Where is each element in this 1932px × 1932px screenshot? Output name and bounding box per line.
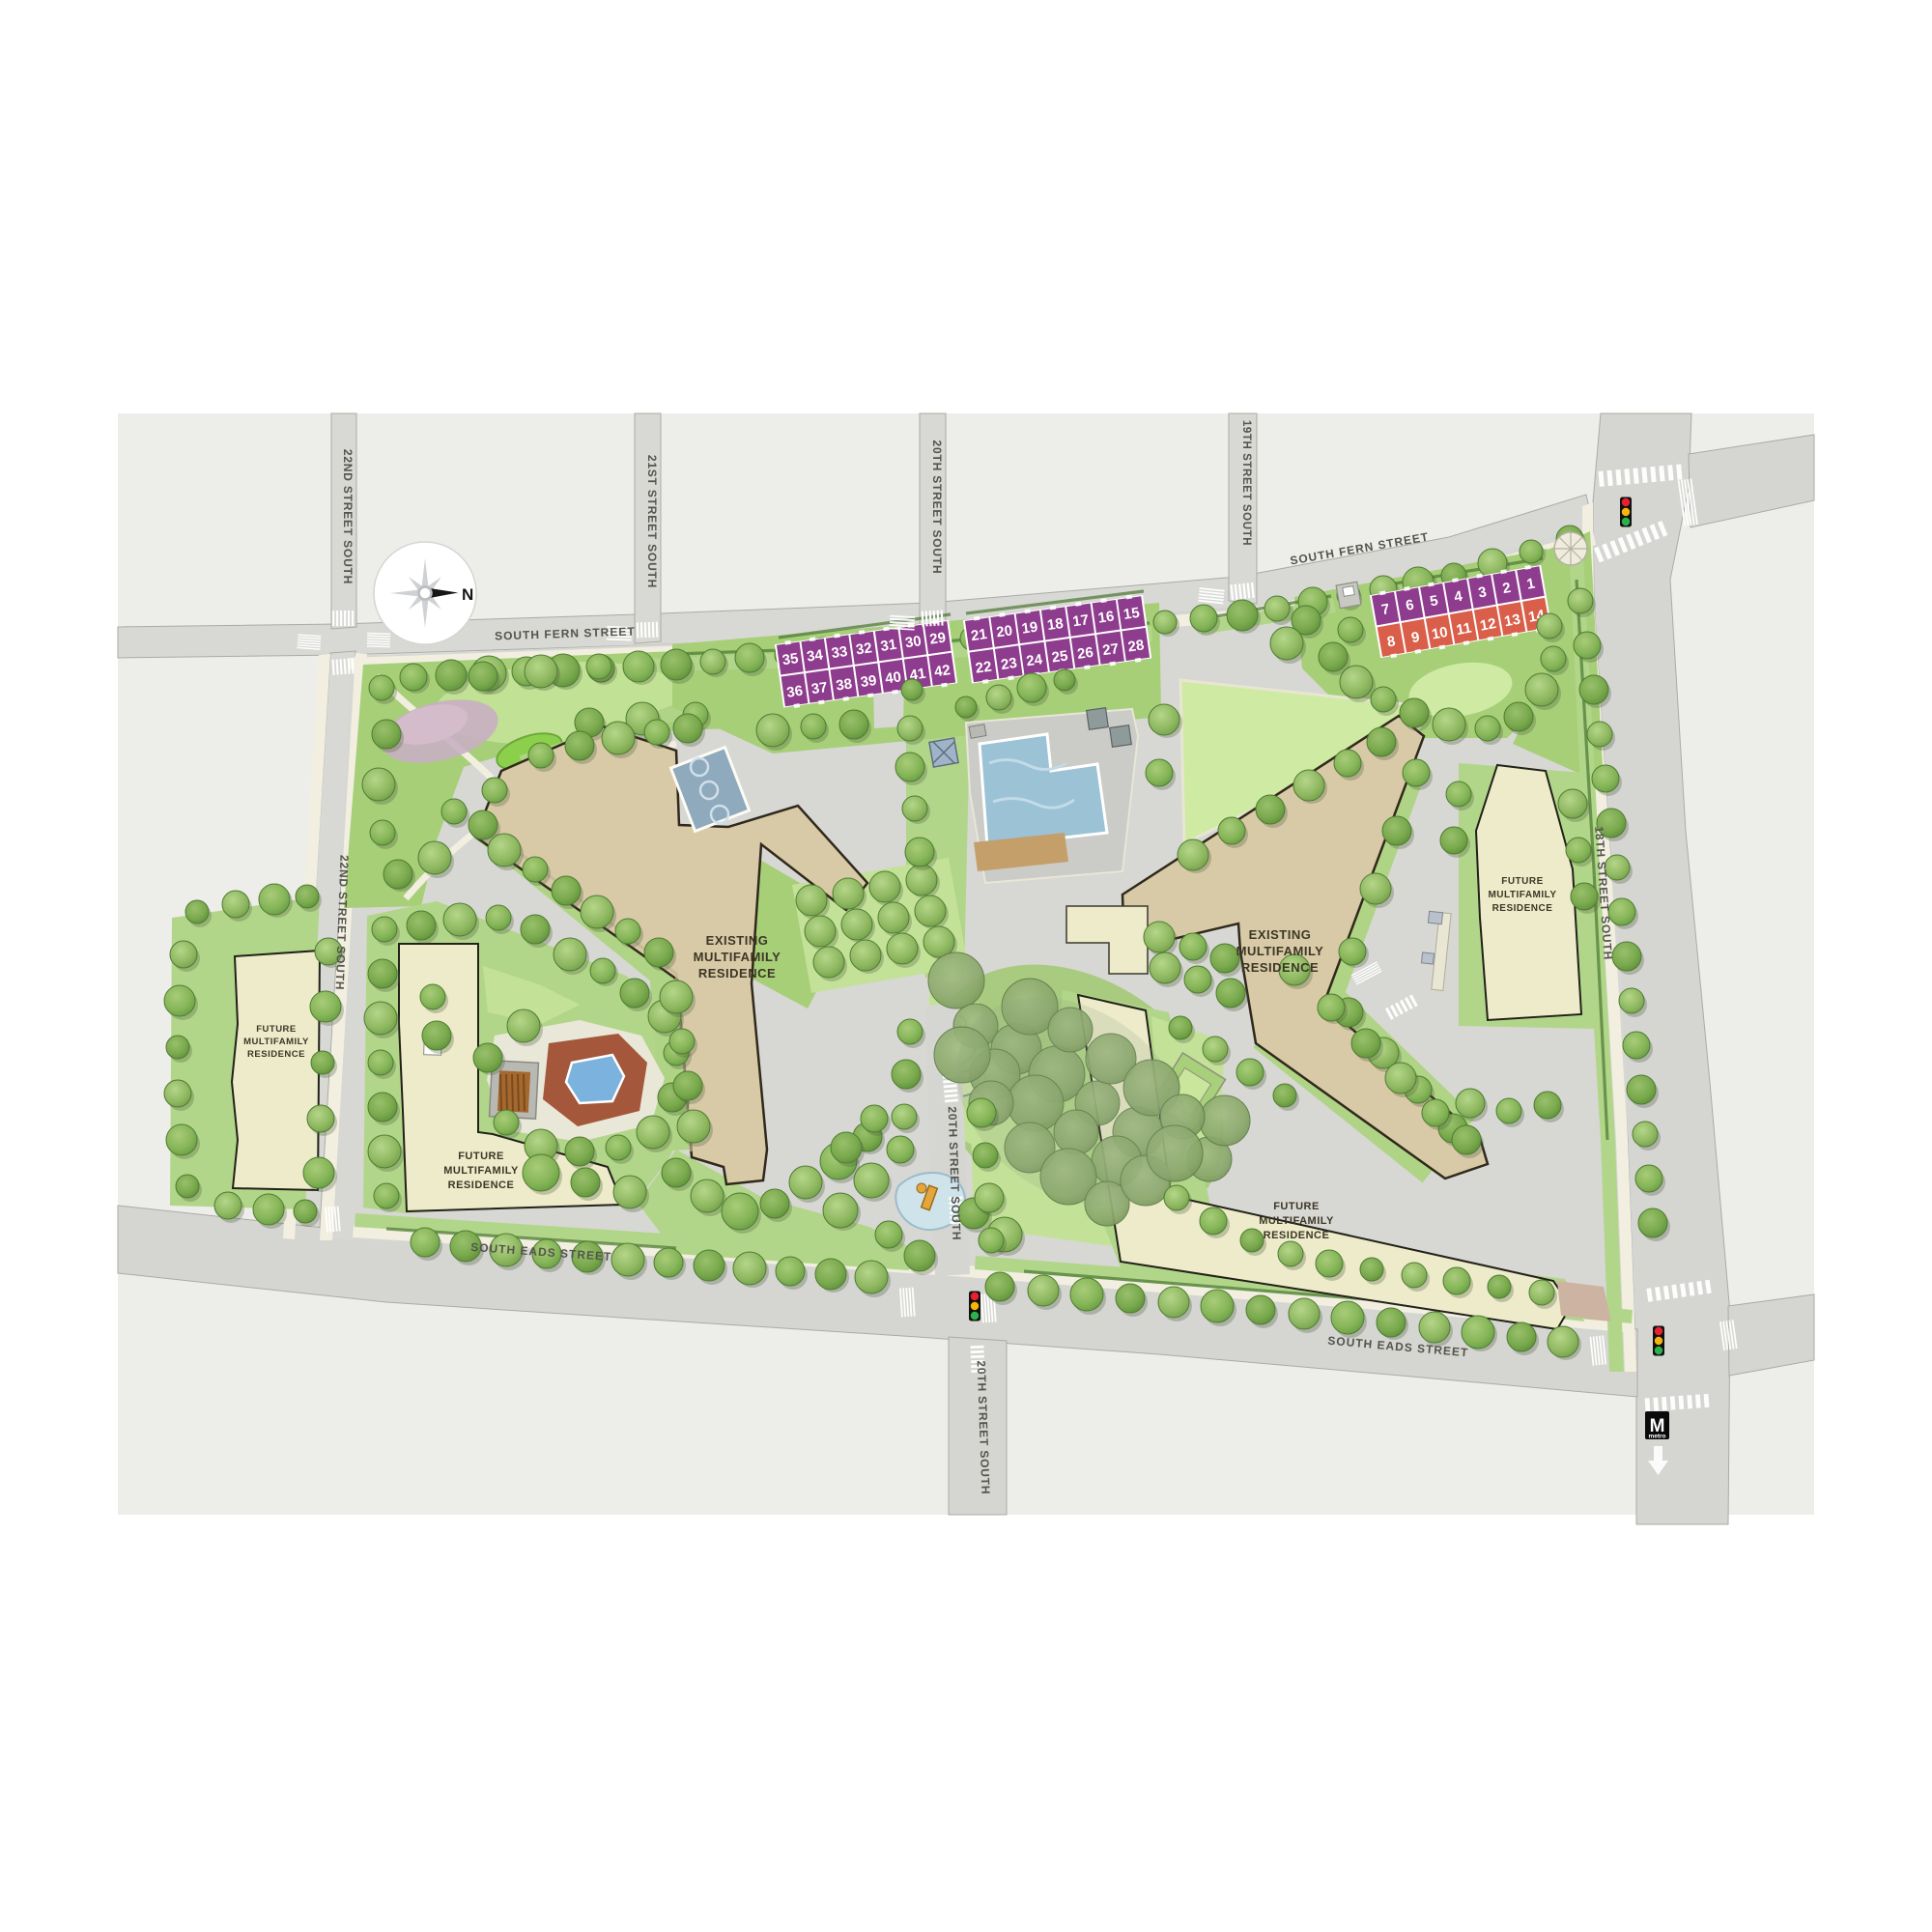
svg-text:18: 18 bbox=[1046, 615, 1065, 634]
svg-text:RESIDENCE: RESIDENCE bbox=[1264, 1230, 1330, 1241]
svg-text:37: 37 bbox=[810, 679, 829, 697]
svg-text:FUTURE: FUTURE bbox=[1273, 1201, 1320, 1212]
svg-text:metro: metro bbox=[1648, 1434, 1665, 1440]
svg-text:38: 38 bbox=[835, 675, 853, 694]
svg-text:22ND STREET SOUTH: 22ND STREET SOUTH bbox=[341, 449, 355, 584]
svg-text:MULTIFAMILY: MULTIFAMILY bbox=[1236, 944, 1324, 958]
svg-text:22: 22 bbox=[975, 659, 993, 677]
svg-text:40: 40 bbox=[884, 668, 902, 687]
svg-text:32: 32 bbox=[855, 639, 873, 658]
svg-text:20: 20 bbox=[995, 622, 1013, 640]
svg-text:29: 29 bbox=[928, 630, 947, 648]
svg-text:36: 36 bbox=[785, 683, 804, 701]
svg-text:12: 12 bbox=[1479, 615, 1497, 635]
svg-text:15: 15 bbox=[1122, 605, 1141, 623]
svg-text:28: 28 bbox=[1127, 637, 1146, 655]
svg-text:RESIDENCE: RESIDENCE bbox=[1492, 903, 1553, 914]
svg-text:MULTIFAMILY: MULTIFAMILY bbox=[243, 1037, 309, 1047]
svg-text:21: 21 bbox=[970, 626, 988, 644]
svg-text:RESIDENCE: RESIDENCE bbox=[698, 966, 776, 980]
svg-text:17: 17 bbox=[1071, 611, 1090, 630]
svg-text:EXISTING: EXISTING bbox=[1249, 927, 1312, 942]
svg-text:34: 34 bbox=[806, 646, 825, 665]
svg-text:20TH STREET SOUTH: 20TH STREET SOUTH bbox=[930, 440, 944, 575]
svg-text:25: 25 bbox=[1051, 647, 1069, 666]
svg-text:MULTIFAMILY: MULTIFAMILY bbox=[694, 950, 781, 964]
svg-text:21ST STREET SOUTH: 21ST STREET SOUTH bbox=[645, 455, 659, 588]
svg-text:13: 13 bbox=[1503, 611, 1521, 631]
svg-text:RESIDENCE: RESIDENCE bbox=[247, 1049, 305, 1060]
svg-text:11: 11 bbox=[1455, 620, 1473, 639]
svg-text:35: 35 bbox=[781, 650, 800, 668]
svg-text:33: 33 bbox=[831, 643, 849, 662]
svg-text:24: 24 bbox=[1025, 651, 1044, 669]
svg-text:19TH STREET SOUTH: 19TH STREET SOUTH bbox=[1240, 420, 1252, 546]
svg-text:42: 42 bbox=[933, 662, 952, 680]
svg-text:19: 19 bbox=[1021, 619, 1039, 638]
svg-text:26: 26 bbox=[1076, 644, 1094, 663]
svg-text:27: 27 bbox=[1101, 640, 1120, 659]
svg-text:RESIDENCE: RESIDENCE bbox=[1241, 960, 1319, 975]
svg-text:31: 31 bbox=[879, 637, 897, 655]
svg-text:FUTURE: FUTURE bbox=[1501, 876, 1544, 887]
svg-text:10: 10 bbox=[1431, 624, 1449, 643]
svg-text:EXISTING: EXISTING bbox=[706, 933, 769, 948]
svg-text:30: 30 bbox=[904, 633, 923, 651]
svg-text:MULTIFAMILY: MULTIFAMILY bbox=[443, 1165, 519, 1177]
svg-text:39: 39 bbox=[860, 672, 878, 691]
svg-text:RESIDENCE: RESIDENCE bbox=[448, 1179, 515, 1191]
svg-text:FUTURE: FUTURE bbox=[458, 1151, 504, 1162]
svg-text:FUTURE: FUTURE bbox=[256, 1024, 297, 1035]
svg-text:MULTIFAMILY: MULTIFAMILY bbox=[1259, 1215, 1334, 1227]
svg-text:N: N bbox=[462, 585, 473, 604]
svg-text:MULTIFAMILY: MULTIFAMILY bbox=[1488, 890, 1556, 900]
svg-text:16: 16 bbox=[1097, 609, 1116, 627]
svg-text:23: 23 bbox=[1000, 655, 1018, 673]
